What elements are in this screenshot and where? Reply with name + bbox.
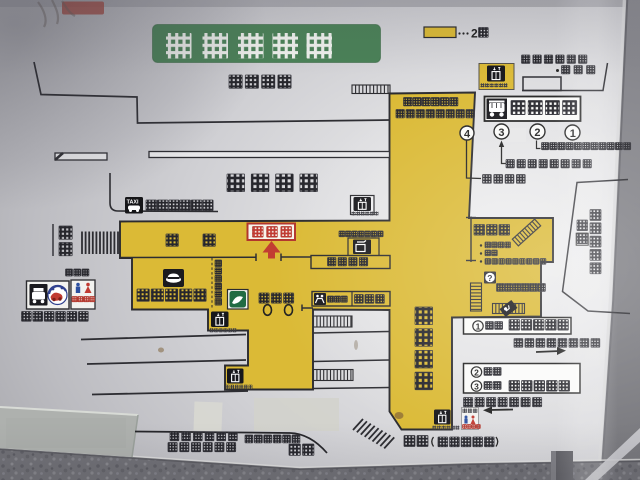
svg-text:3: 3 bbox=[498, 127, 504, 139]
svg-text:2: 2 bbox=[471, 27, 478, 41]
svg-text:4: 4 bbox=[464, 128, 471, 140]
svg-text:?: ? bbox=[487, 273, 492, 283]
svg-text:2: 2 bbox=[474, 367, 479, 377]
svg-text:3: 3 bbox=[474, 381, 479, 391]
svg-text:1: 1 bbox=[476, 321, 481, 331]
svg-text:TAXI: TAXI bbox=[127, 199, 139, 205]
svg-text:2: 2 bbox=[534, 127, 540, 139]
svg-text:1: 1 bbox=[570, 128, 576, 140]
